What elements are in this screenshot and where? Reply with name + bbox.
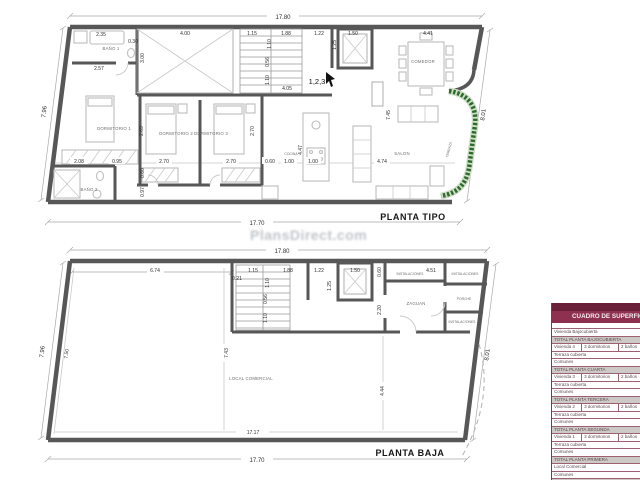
dim-label: 4.41 — [423, 31, 433, 37]
table-cell: Terraza cubierta — [554, 412, 586, 419]
room-label-salon: SALON — [394, 151, 410, 156]
nightstand — [178, 104, 187, 113]
hedge — [441, 91, 475, 196]
floorplan-sheet: 17.80 2.35 0.30 4.00 1.15 1.88 1.22 1.50… — [0, 0, 640, 480]
dim-label: 1.88 — [281, 31, 291, 37]
table-top-strip — [552, 303, 640, 311]
plan-title-baja: PLANTA BAJA — [375, 448, 444, 458]
dim-label: 1.22 — [314, 31, 324, 37]
dim-label: 1.10 — [265, 278, 271, 288]
room-label-comedor: COMEDOR — [411, 59, 435, 64]
nightstand — [246, 104, 255, 113]
table-cell: Vivienda 3 — [554, 374, 582, 381]
toilet — [128, 49, 135, 58]
dim-label: 0.56 — [265, 57, 271, 67]
table-cell: 2 baños — [621, 344, 639, 351]
table-row: Terraza cubierta — [552, 442, 640, 450]
dim-label: 2.70 — [159, 159, 169, 165]
staircase — [240, 29, 302, 93]
table-row: TOTAL PLANTA CUARTA — [552, 367, 640, 375]
table-row: Local Comercial — [552, 464, 640, 472]
room-label-instalaciones: INSTALACIONES — [397, 272, 425, 276]
table-row: Vivienda 23 dormitorios2 baños — [552, 404, 640, 412]
table-cell: Comunes — [554, 419, 573, 426]
dim-label: 2.70 — [226, 159, 236, 165]
dim-label: 4.05 — [282, 86, 292, 92]
table-title: CUADRO DE SUPERFICIES — [552, 311, 640, 323]
dim-label: 2.69 — [139, 126, 145, 136]
table-row: Vivienda 13 dormitorios2 baños — [552, 434, 640, 442]
bathtub — [90, 31, 124, 44]
table-row: Terraza cubierta — [552, 412, 640, 420]
table-cell: TOTAL PLANTA SEGUNDA — [554, 427, 610, 434]
dim-label: 0.95 — [112, 159, 122, 165]
table-cell: Comunes — [554, 389, 573, 396]
table-row: Comunes — [552, 359, 640, 367]
dim-label: 1.10 — [265, 75, 271, 85]
room-label-instalaciones: INSTALACIONES — [449, 320, 477, 324]
table-row: TOTAL PLANTA BAJOCUBIERTA — [552, 337, 640, 345]
chair — [399, 46, 406, 55]
room-label-local-comercial: LOCAL COMERCIAL — [229, 376, 273, 381]
table-row: TOTAL PLANTA PRIMERA — [552, 457, 640, 465]
table-cell: 2 baños — [621, 404, 639, 411]
table-cell: TOTAL PLANTA TERCERA — [554, 397, 609, 404]
mouse-cursor — [326, 72, 335, 87]
dim-label: 7.43 — [224, 348, 230, 358]
table-cell: Terraza cubierta — [554, 382, 586, 389]
table-cell: 3 dormitorios — [584, 404, 619, 411]
table-cell: 2 baños — [621, 434, 639, 441]
dining-table — [408, 42, 444, 86]
dim-label: 1.15 — [248, 268, 258, 274]
dim-label: 4.47 — [298, 145, 304, 155]
table-cell: Comunes — [554, 359, 573, 366]
closet — [222, 168, 260, 182]
chimney — [372, 82, 383, 106]
dim-label: 2.20 — [377, 305, 383, 315]
dim-label: 0.97 — [140, 187, 146, 197]
room-label-dormitorio3: DORMITORIO 3 — [194, 131, 228, 136]
room-label-dormitorio2: DORMITORIO 2 — [159, 131, 193, 136]
table-row: Vivienda 43 dormitorios2 baños — [552, 344, 640, 352]
dim-label: 1.00 — [284, 159, 294, 165]
table-row: Vivienda Bajocubierta — [552, 329, 640, 337]
dim-label: 8.01 — [480, 108, 487, 121]
table-cell: Comunes — [554, 472, 573, 479]
dim-label: 1.50 — [350, 268, 360, 274]
table-cell: 3 dormitorios — [584, 434, 619, 441]
dim-label: 2.08 — [74, 159, 84, 165]
dim-label: 1.25 — [332, 40, 338, 50]
room-label-bano2: BAÑO 2 — [81, 187, 98, 192]
step-annotation: 1,2,3 — [309, 77, 326, 86]
table-row: Terraza cubierta — [552, 382, 640, 390]
table-cell: TOTAL PLANTA CUARTA — [554, 367, 605, 374]
dim-label: 1.50 — [348, 31, 358, 37]
room-label-bano1: BAÑO 1 — [103, 46, 120, 51]
table-cell: Vivienda 1 — [554, 434, 582, 441]
dim-label: 8.01 — [484, 348, 491, 361]
dim-label: 17.80 — [274, 249, 290, 255]
table-cell: Terraza cubierta — [554, 352, 586, 359]
plan-title-tipo: PLANTA TIPO — [380, 212, 446, 222]
table-cell: TOTAL PLANTA PRIMERA — [554, 457, 608, 464]
room-label-cocina: COCINA — [284, 152, 298, 156]
dim-label: 7.96 — [41, 105, 48, 118]
table-row: Comunes — [552, 419, 640, 427]
table-cell: Vivienda 2 — [554, 404, 582, 411]
patio-void — [137, 29, 233, 93]
dim-label: 0.60 — [265, 159, 275, 165]
dim-label: 4.00 — [180, 31, 190, 37]
table-row: Comunes — [552, 472, 640, 480]
dim-label: 1.25 — [327, 281, 333, 291]
room-label-instalaciones: INSTALACIONES — [452, 272, 480, 276]
table-cell: Local Comercial — [554, 464, 586, 471]
dim-label: 0.21 — [232, 276, 242, 282]
dim-label: 4.51 — [426, 268, 436, 274]
table-cell: 2 baños — [621, 374, 639, 381]
dim-label: 4.44 — [380, 386, 386, 396]
room-label-porche: PORCHE — [457, 297, 472, 301]
dim-label: 1.00 — [308, 159, 318, 165]
table-cell: Terraza cubierta — [554, 442, 586, 449]
dim-label: 1.88 — [283, 268, 293, 274]
planta-tipo-plan: 17.80 2.35 0.30 4.00 1.15 1.88 1.22 1.50… — [38, 11, 493, 227]
dim-label: 3.00 — [140, 53, 146, 63]
table-row: TOTAL PLANTA TERCERA — [552, 397, 640, 405]
armchair — [262, 186, 278, 199]
sofa — [376, 186, 428, 199]
room-label-terraza: TERRAZA — [445, 141, 453, 158]
dim-label: 0.30 — [128, 39, 138, 45]
table-row: Terraza cubierta — [552, 352, 640, 360]
dim-label: 17.70 — [249, 458, 265, 464]
dim-label: 17.80 — [275, 15, 291, 21]
dim-label: 7.96 — [39, 345, 46, 358]
table-cell: TOTAL PLANTA BAJOCUBIERTA — [554, 337, 621, 344]
surface-table: CUADRO DE SUPERFICIES Vivienda Bajocubie… — [551, 303, 640, 480]
dim-label: 0.60 — [377, 267, 383, 277]
table-cell: Vivienda Bajocubierta — [554, 329, 597, 336]
room-label-zaguan: ZAGUAN — [406, 301, 425, 306]
table-cell: 3 dormitorios — [584, 344, 619, 351]
dim-label: 0.56 — [263, 294, 269, 304]
dim-label: 7.45 — [386, 110, 392, 120]
watermark: PlansDirect.com — [250, 227, 410, 243]
sink — [74, 31, 87, 43]
dim-label: 2.70 — [250, 126, 256, 136]
sofa — [398, 106, 438, 122]
dim-label: 4.74 — [377, 159, 387, 165]
dim-label: 2.57 — [94, 66, 104, 72]
dim-label: 1.22 — [314, 268, 324, 274]
table-row: Vivienda 33 dormitorios2 baños — [552, 374, 640, 382]
terrace-table — [430, 166, 444, 186]
dim-label: 17.17 — [247, 430, 260, 436]
dim-label: 0.60 — [140, 168, 146, 178]
kitchen-sink — [312, 121, 320, 129]
table-cell: Comunes — [554, 449, 573, 456]
table-row: Comunes — [552, 389, 640, 397]
dim-label: 1.10 — [267, 39, 273, 49]
dim-label: 2.35 — [96, 32, 106, 38]
table-row: TOTAL PLANTA SEGUNDA — [552, 427, 640, 435]
surface-table-body: Vivienda BajocubiertaTOTAL PLANTA BAJOCU… — [552, 329, 640, 480]
toilet — [97, 172, 104, 181]
planta-baja-plan: 17.80 6.74 0.21 1.15 1.88 1.22 1.50 4.51… — [38, 245, 499, 464]
room-label-dormitorio1: DORMITORIO 1 — [97, 126, 131, 131]
table-row: Comunes — [552, 449, 640, 457]
dim-label: 1.15 — [247, 31, 257, 37]
door-swings — [400, 302, 445, 332]
table-cell: 3 dormitorios — [584, 374, 619, 381]
dim-label: 1.10 — [263, 313, 269, 323]
table-cell: Vivienda 4 — [554, 344, 582, 351]
dim-label: 7.50 — [63, 348, 70, 359]
dim-label: 6.74 — [150, 268, 160, 274]
